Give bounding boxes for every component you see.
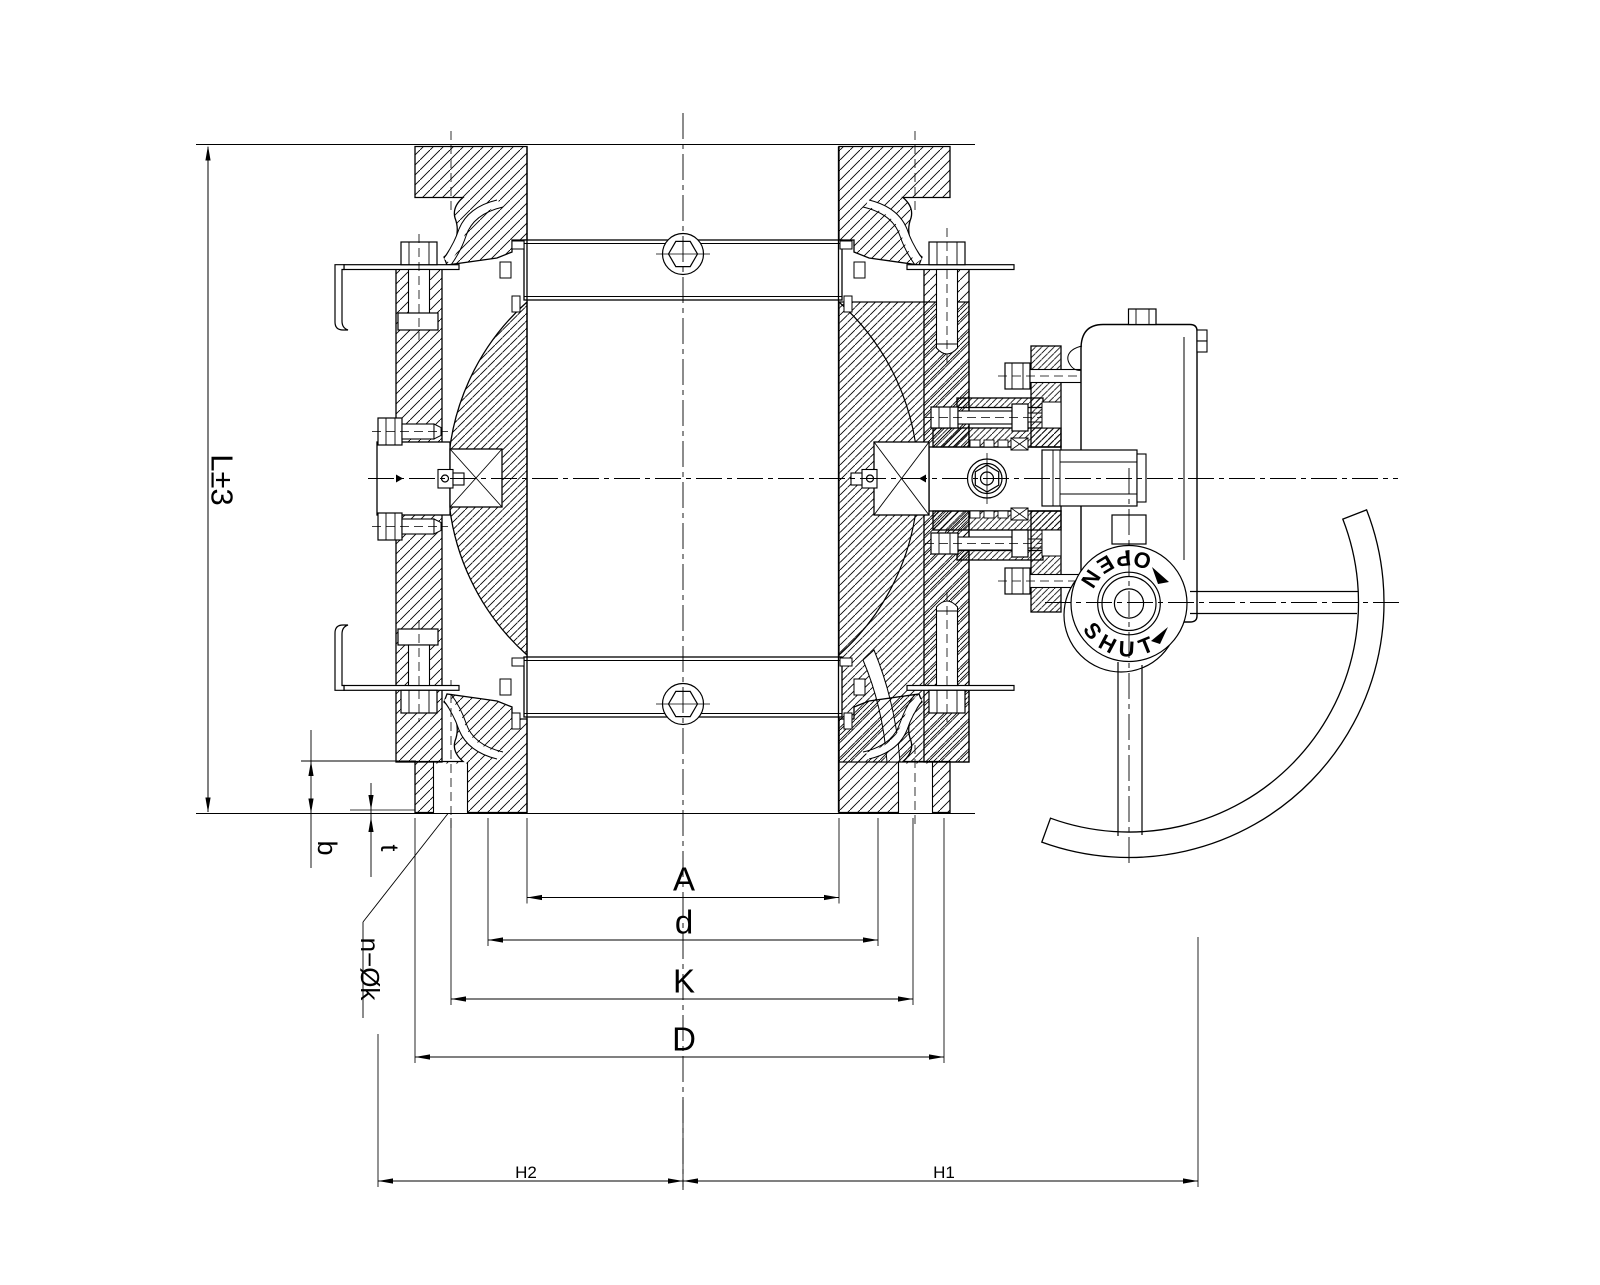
svg-text:H1: H1 <box>933 1163 955 1182</box>
svg-text:n−Øk: n−Øk <box>355 938 385 1002</box>
svg-text:A: A <box>673 861 695 898</box>
svg-text:P: P <box>1115 545 1133 572</box>
svg-text:K: K <box>673 963 695 1000</box>
svg-text:L±3: L±3 <box>205 454 240 506</box>
svg-text:D: D <box>672 1021 696 1058</box>
svg-text:d: d <box>675 904 693 941</box>
svg-text:U: U <box>1118 636 1135 662</box>
svg-text:t: t <box>375 845 403 852</box>
svg-text:H2: H2 <box>515 1163 537 1182</box>
svg-text:b: b <box>312 840 342 855</box>
